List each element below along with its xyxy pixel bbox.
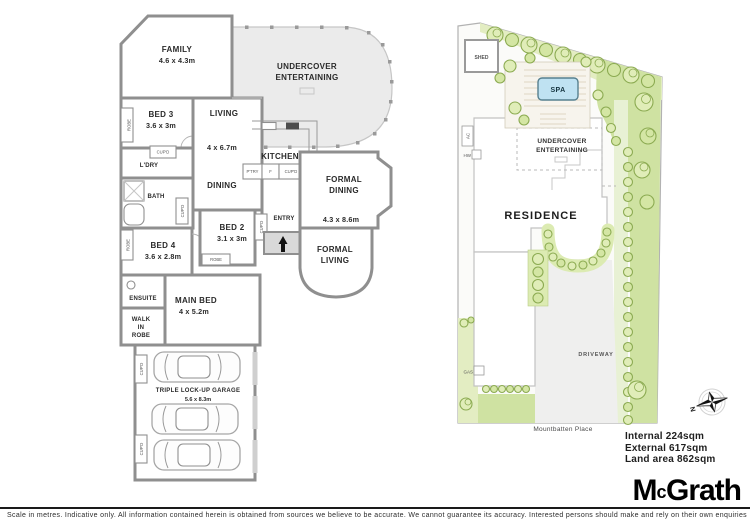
garage-door-3	[253, 440, 258, 473]
room-formal-living: FORMAL LIVING	[300, 228, 372, 297]
driveway-label: DRIVEWAY	[578, 352, 613, 358]
spa-label: SPA	[550, 87, 565, 94]
wir-line1: WALK	[132, 317, 151, 323]
bed4-robe-label: ROBE	[126, 239, 131, 251]
family-dims: 4.6 x 4.3m	[159, 56, 195, 65]
room-formal-dining: FORMAL DINING 4.3 x 8.6m	[300, 152, 391, 228]
dining-label: DINING	[207, 181, 237, 190]
wir-line2: IN	[138, 325, 144, 331]
room-ensuite: ENSUITE	[121, 275, 165, 308]
residence-label: RESIDENCE	[504, 210, 577, 222]
ensuite-basin	[127, 281, 135, 289]
inner-garden-bed	[528, 250, 548, 306]
site-undercover-line1: UNDERCOVER	[537, 138, 586, 145]
formal-dining-line1: FORMAL	[326, 175, 362, 184]
footer-rule	[0, 507, 750, 509]
room-main-bed: MAIN BED 4 x 5.2m	[165, 275, 260, 345]
car-2	[152, 404, 238, 434]
bed4-label: BED 4	[150, 241, 175, 250]
shed: SHED	[465, 40, 498, 72]
logo-c: c	[656, 482, 666, 502]
ac-label: AC	[466, 132, 471, 139]
family-label: FAMILY	[162, 45, 193, 54]
area-summary: Internal 224sqm External 617sqm Land are…	[625, 431, 715, 466]
bed2-label: BED 2	[219, 223, 244, 232]
bed3-robe-label: ROBE	[127, 119, 132, 131]
floorplan-page: { "floorplan": { "family": {"name": "FAM…	[0, 0, 750, 530]
kitchen-label: KITCHEN	[261, 152, 299, 161]
garage-cupd2-label: CUP'D	[139, 443, 144, 456]
laundry-label: L'DRY	[140, 163, 159, 169]
garage-door-2	[253, 396, 258, 429]
room-laundry: CUP'D L'DRY	[121, 146, 193, 178]
logo-rest: Grath	[666, 474, 741, 507]
room-bath: CUP'D BATH	[121, 178, 193, 228]
formal-dining-dims: 4.3 x 8.6m	[323, 215, 359, 224]
wir-line3: ROBE	[132, 333, 150, 339]
footer-disclaimer: Scale in metres. Indicative only. All in…	[7, 512, 747, 519]
room-bed4: ROBE BED 4 3.6 x 2.8m	[121, 228, 204, 275]
bath-label: BATH	[147, 194, 164, 200]
cooktop-icon	[286, 123, 299, 130]
room-bed3: ROBE BED 3 3.6 x 3m	[121, 98, 193, 148]
street-label: Mountbatten Place	[533, 426, 592, 433]
laundry-cupd-label: CUP'D	[157, 150, 170, 155]
room-bed2: ROBE BED 2 3.1 x 3m	[200, 210, 255, 265]
terrace-label-line2: ENTERTAINING	[275, 73, 338, 82]
bed3-label: BED 3	[148, 110, 173, 119]
main-bed-label: MAIN BED	[175, 296, 217, 305]
garage-cupd1-label: CUP'D	[139, 363, 144, 376]
hw-label: HW	[464, 153, 472, 158]
living-dims: 4 x 6.7m	[207, 143, 237, 152]
land-area: Land area 862sqm	[625, 454, 715, 466]
spa-area: SPA	[495, 53, 591, 128]
main-bed-dims: 4 x 5.2m	[179, 307, 209, 316]
garage-door-1	[253, 352, 258, 385]
floor-plan: UNDERCOVER ENTERTAINING FAMILY 4.6 x 4.3…	[121, 16, 394, 480]
bed2-robe-label: ROBE	[210, 257, 222, 262]
internal-area: Internal 224sqm	[625, 431, 715, 443]
garage-dims: 5.6 x 8.3m	[185, 397, 211, 403]
living-label: LIVING	[210, 109, 238, 118]
shed-label: SHED	[475, 55, 489, 61]
hw-unit	[472, 150, 481, 159]
bed2-dims: 3.1 x 3m	[217, 234, 247, 243]
kitchen-cupd-label: CUP'D	[285, 169, 298, 174]
gas-label: GAS	[463, 370, 473, 375]
external-area: External 617sqm	[625, 443, 715, 455]
terrace-label-line1: UNDERCOVER	[277, 62, 337, 71]
car-3	[154, 440, 240, 470]
entry-label: ENTRY	[273, 216, 294, 222]
room-living-dining: LIVING 4 x 6.7m DINING	[193, 98, 262, 210]
compass-icon: N	[686, 385, 730, 420]
bath-cupd-label: CUP'D	[180, 205, 185, 218]
site-plan: DRIVEWAY UNDERCOVER ENTERTAINING RESIDEN…	[458, 23, 731, 433]
formal-dining-line2: DINING	[329, 186, 359, 195]
car-1	[154, 352, 240, 382]
formal-living-line1: FORMAL	[317, 245, 353, 254]
formal-living-line2: LIVING	[321, 256, 349, 265]
mcgrath-logo: McGrath	[632, 474, 741, 508]
gas-meter	[474, 366, 484, 375]
fridge-label: F	[269, 169, 272, 174]
logo-m: M	[632, 474, 656, 507]
compass-north-label: N	[690, 406, 698, 413]
ensuite-label: ENSUITE	[129, 296, 156, 302]
garage-label: TRIPLE LOCK-UP GARAGE	[156, 388, 241, 394]
site-undercover-line2: ENTERTAINING	[536, 147, 588, 154]
room-family: FAMILY 4.6 x 4.3m	[121, 16, 232, 98]
pantry1-label: P'TRY	[247, 169, 259, 174]
bathtub	[124, 204, 144, 225]
kitchen-sink	[262, 123, 276, 130]
bed4-dims: 3.6 x 2.8m	[145, 252, 181, 261]
room-walk-in-robe: WALK IN ROBE	[121, 308, 165, 345]
bed3-dims: 3.6 x 3m	[146, 121, 176, 130]
room-garage: CUP'D CUP'D TRIPLE LOCK-UP GARAGE 5.6 x …	[135, 345, 258, 480]
